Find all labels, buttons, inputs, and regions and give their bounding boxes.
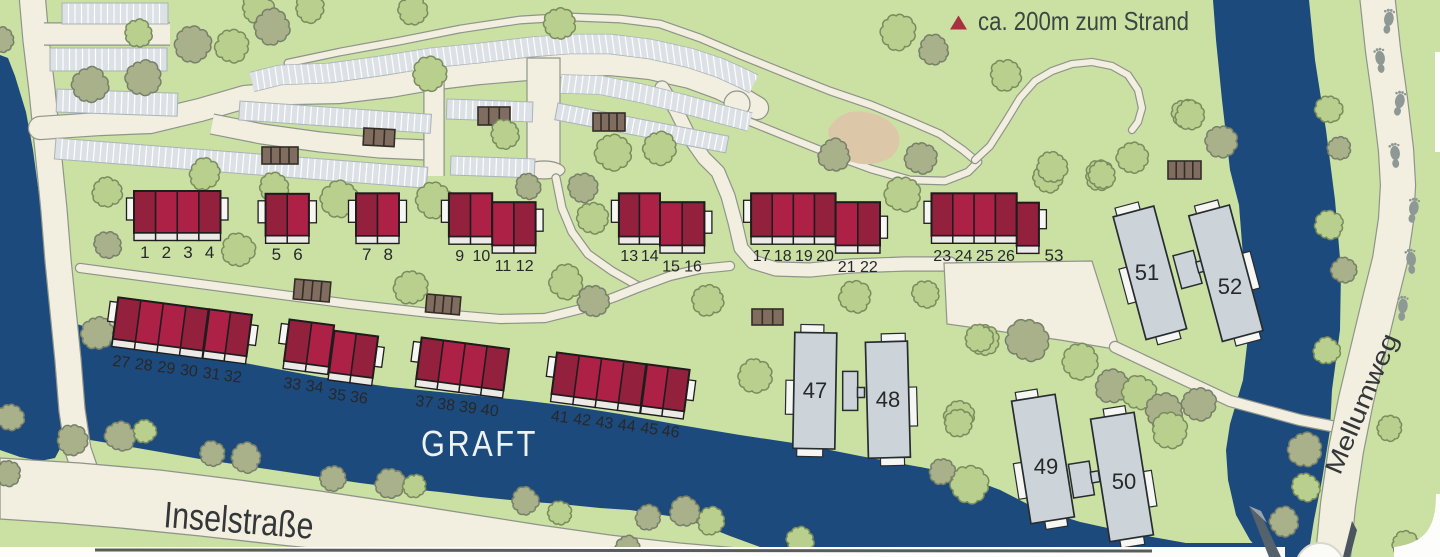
- svg-text:8: 8: [383, 245, 392, 264]
- svg-text:15: 15: [662, 259, 680, 276]
- svg-text:24: 24: [955, 248, 973, 265]
- svg-text:50: 50: [1112, 469, 1136, 494]
- svg-text:27: 27: [111, 353, 131, 372]
- svg-text:51: 51: [1135, 260, 1159, 285]
- svg-text:GRAFT: GRAFT: [421, 423, 538, 464]
- svg-text:20: 20: [816, 248, 834, 265]
- svg-text:49: 49: [1034, 454, 1058, 479]
- svg-text:25: 25: [976, 248, 994, 265]
- svg-text:17: 17: [753, 248, 771, 265]
- svg-text:2: 2: [162, 243, 171, 262]
- svg-text:23: 23: [933, 248, 951, 265]
- svg-text:19: 19: [795, 248, 813, 265]
- svg-text:41: 41: [550, 408, 570, 427]
- svg-text:18: 18: [774, 248, 792, 265]
- svg-text:29: 29: [156, 359, 176, 378]
- svg-text:42: 42: [572, 411, 592, 430]
- svg-text:45: 45: [639, 420, 659, 439]
- svg-text:4: 4: [205, 243, 214, 262]
- svg-text:46: 46: [661, 423, 681, 442]
- svg-text:10: 10: [473, 248, 491, 265]
- svg-text:37: 37: [414, 393, 434, 412]
- svg-text:14: 14: [641, 248, 659, 265]
- svg-text:48: 48: [876, 387, 900, 412]
- svg-text:28: 28: [134, 356, 154, 375]
- svg-text:35: 35: [327, 386, 347, 405]
- svg-text:26: 26: [997, 248, 1015, 265]
- svg-text:16: 16: [684, 259, 702, 276]
- svg-text:21: 21: [838, 259, 856, 276]
- svg-text:31: 31: [202, 365, 222, 384]
- svg-text:12: 12: [516, 258, 534, 275]
- svg-text:43: 43: [594, 414, 614, 433]
- svg-text:32: 32: [223, 368, 243, 387]
- svg-text:47: 47: [803, 378, 827, 403]
- svg-text:5: 5: [272, 245, 281, 264]
- svg-text:30: 30: [179, 362, 199, 381]
- svg-text:22: 22: [860, 259, 878, 276]
- svg-text:33: 33: [282, 375, 302, 394]
- svg-text:44: 44: [617, 417, 637, 436]
- svg-text:7: 7: [362, 245, 371, 264]
- svg-text:6: 6: [293, 245, 302, 264]
- svg-text:36: 36: [349, 389, 369, 408]
- svg-text:11: 11: [495, 258, 512, 275]
- svg-text:ca. 200m zum Strand: ca. 200m zum Strand: [978, 6, 1189, 36]
- svg-text:1: 1: [140, 243, 149, 262]
- svg-text:34: 34: [305, 378, 325, 397]
- svg-text:13: 13: [620, 248, 638, 265]
- svg-text:40: 40: [480, 401, 500, 420]
- svg-text:39: 39: [458, 399, 478, 418]
- svg-text:3: 3: [183, 243, 192, 262]
- svg-text:53: 53: [1045, 246, 1064, 265]
- svg-text:52: 52: [1218, 274, 1242, 299]
- svg-text:9: 9: [455, 248, 464, 265]
- svg-text:38: 38: [436, 396, 456, 415]
